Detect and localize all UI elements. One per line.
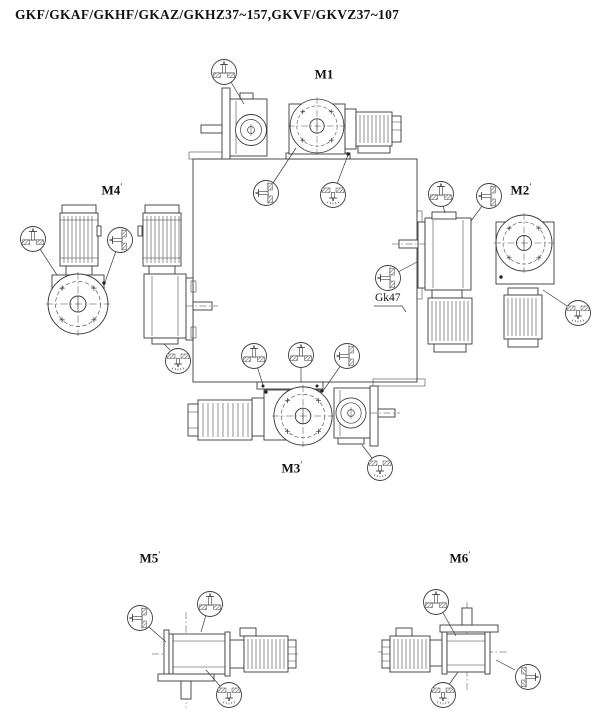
position-label-m2: M2′ xyxy=(510,182,531,198)
mounting-positions-page: GKF/GKAF/GKHF/GKAZ/GKHZ37~157,GKVF/GKVZ3… xyxy=(0,0,600,724)
mounting-positions-diagram xyxy=(0,0,600,724)
m4-front-view xyxy=(46,205,110,336)
position-label-m4: M4′ xyxy=(101,182,122,198)
m1-side-view xyxy=(189,88,267,159)
m2-motor xyxy=(504,295,542,347)
m2-motor-side xyxy=(428,298,472,352)
gk47-label: Gk47 xyxy=(375,292,401,304)
gk47-callout xyxy=(374,262,417,312)
m1-front-view xyxy=(286,97,401,159)
oil-level-plug-icon xyxy=(108,228,133,253)
m4-assembly xyxy=(21,205,219,374)
oil-drain-plug-icon xyxy=(217,683,242,708)
m4-motor-side xyxy=(138,205,181,266)
oil-drain-plug-icon xyxy=(368,456,393,481)
oil-drain-plug-icon xyxy=(321,183,346,208)
m2-front-view xyxy=(494,213,554,347)
oil-level-plug-icon xyxy=(477,184,502,209)
oil-level-plug-icon xyxy=(516,665,541,690)
position-label-m1: M1 xyxy=(315,66,334,82)
m5-assembly xyxy=(128,592,301,709)
breather-plug-icon xyxy=(212,60,237,85)
breather-plug-icon xyxy=(289,343,314,368)
m1-motor xyxy=(356,112,401,153)
m6-gear-unit xyxy=(440,608,498,674)
page-title: GKF/GKAF/GKHF/GKAZ/GKHZ37~157,GKVF/GKVZ3… xyxy=(15,7,399,23)
m2-side-view xyxy=(392,211,472,352)
oil-level-plug-icon xyxy=(376,266,401,291)
position-label-m6: M6′ xyxy=(449,550,470,566)
oil-level-plug-icon xyxy=(128,606,153,631)
breather-plug-icon xyxy=(21,227,46,252)
oil-drain-plug-icon xyxy=(166,349,191,374)
breather-plug-icon xyxy=(242,344,267,369)
position-label-m3: M3′ xyxy=(281,460,302,476)
oil-level-plug-icon xyxy=(254,181,279,206)
m4-motor xyxy=(60,205,101,266)
m3-motor xyxy=(188,400,252,440)
m3-assembly xyxy=(188,343,425,481)
oil-level-plug-icon xyxy=(335,344,360,369)
m5-motor xyxy=(240,628,296,672)
m3-front-view xyxy=(188,382,334,447)
oil-drain-plug-icon xyxy=(566,301,591,326)
breather-plug-icon xyxy=(429,182,454,207)
breather-plug-icon xyxy=(424,590,449,615)
position-label-m5: M5′ xyxy=(139,550,160,566)
m2-assembly xyxy=(374,182,591,353)
m6-output-shaft xyxy=(462,608,472,625)
m1-output-shaft xyxy=(201,125,222,133)
oil-drain-plug-icon xyxy=(431,683,456,708)
breather-plug-icon xyxy=(198,592,223,617)
m4-side-view xyxy=(138,205,218,344)
m5-output-shaft xyxy=(181,681,191,699)
m3-side-view xyxy=(334,379,425,446)
m6-assembly xyxy=(378,590,541,708)
m1-foot-bracket xyxy=(189,152,222,159)
m6-motor xyxy=(382,628,430,672)
m1-assembly xyxy=(189,60,401,208)
